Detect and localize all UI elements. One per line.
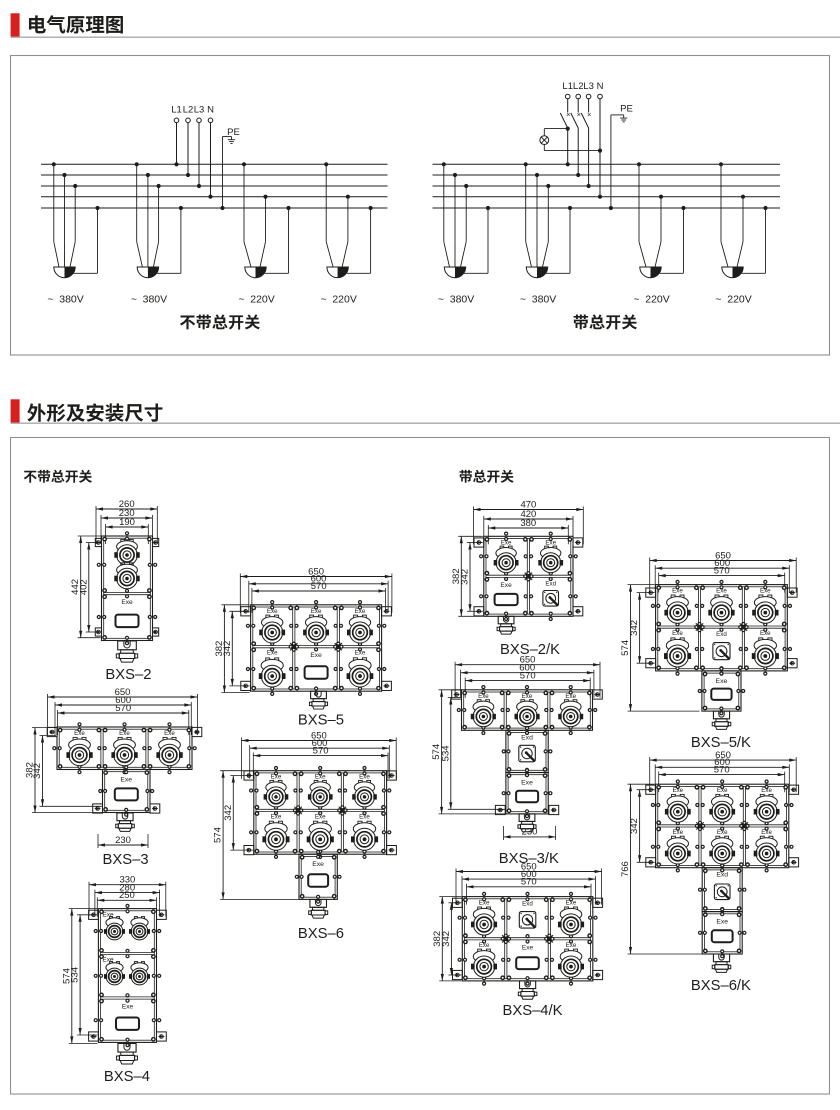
svg-text:342: 342: [441, 931, 452, 947]
svg-text:Exe: Exe: [716, 678, 728, 685]
svg-text:Exd: Exd: [521, 734, 533, 741]
svg-text:570: 570: [714, 764, 730, 775]
svg-text:BXS–6/K: BXS–6/K: [691, 978, 751, 994]
svg-text:570: 570: [311, 581, 327, 592]
svg-text:Exe: Exe: [522, 944, 534, 951]
svg-text:574: 574: [213, 827, 224, 843]
svg-text:~: ~: [238, 294, 244, 306]
svg-text:Exe: Exe: [761, 829, 772, 836]
svg-text:Exe: Exe: [716, 588, 727, 595]
svg-text:×: ×: [566, 110, 570, 119]
svg-text:574: 574: [620, 640, 631, 656]
svg-text:N: N: [207, 105, 214, 116]
svg-text:Exe: Exe: [522, 693, 533, 700]
svg-text:Exe: Exe: [271, 774, 282, 781]
svg-text:342: 342: [629, 620, 640, 636]
svg-text:Exe: Exe: [717, 787, 728, 794]
svg-text:Exe: Exe: [315, 774, 326, 781]
svg-text:402: 402: [78, 579, 89, 595]
svg-text:Exd: Exd: [716, 872, 728, 879]
svg-text:~: ~: [633, 294, 639, 306]
svg-text:Exe: Exe: [359, 813, 370, 820]
svg-text:570: 570: [313, 745, 329, 756]
svg-text:Exd: Exd: [545, 580, 556, 587]
svg-text:Exe: Exe: [566, 900, 577, 907]
svg-text:380: 380: [520, 518, 536, 529]
svg-text:570: 570: [714, 565, 730, 576]
svg-text:Exe: Exe: [501, 539, 512, 546]
svg-text:Exe: Exe: [672, 829, 683, 836]
svg-text:Exe: Exe: [478, 693, 489, 700]
svg-text:BXS–2: BXS–2: [105, 667, 151, 683]
svg-text:Exe: Exe: [500, 582, 512, 589]
svg-text:570: 570: [520, 670, 536, 681]
svg-text:Exe: Exe: [521, 780, 533, 787]
svg-text:Exe: Exe: [271, 813, 282, 820]
svg-text:Exe: Exe: [716, 919, 728, 926]
svg-text:Exe: Exe: [566, 942, 577, 949]
svg-text:Exe: Exe: [122, 1004, 134, 1011]
svg-text:Exe: Exe: [359, 774, 370, 781]
svg-text:Exe: Exe: [310, 652, 322, 659]
svg-text:Exe: Exe: [267, 650, 278, 657]
svg-text:~: ~: [47, 294, 53, 306]
svg-text:570: 570: [115, 703, 131, 714]
svg-text:Exe: Exe: [672, 630, 683, 637]
svg-text:Exe: Exe: [545, 539, 556, 546]
svg-text:L3: L3: [194, 105, 205, 116]
svg-text:220V: 220V: [645, 294, 670, 306]
svg-text:Exe: Exe: [315, 813, 326, 820]
svg-text:BXS–6: BXS–6: [298, 926, 344, 942]
svg-text:220V: 220V: [727, 294, 752, 306]
svg-text:Exe: Exe: [121, 599, 133, 606]
svg-text:Exe: Exe: [120, 777, 132, 784]
svg-text:Exe: Exe: [355, 608, 366, 615]
svg-text:Exe: Exe: [479, 942, 490, 949]
svg-text:Exe: Exe: [479, 900, 490, 907]
svg-text:BXS–5/K: BXS–5/K: [691, 735, 751, 751]
svg-text:×: ×: [577, 110, 581, 119]
svg-text:~: ~: [520, 294, 526, 306]
svg-text:L3: L3: [583, 81, 594, 92]
svg-text:Exe: Exe: [355, 650, 366, 657]
svg-text:380V: 380V: [143, 294, 168, 306]
svg-text:Exe: Exe: [267, 608, 278, 615]
svg-text:250: 250: [119, 890, 135, 901]
svg-text:Exe: Exe: [672, 787, 683, 794]
svg-text:Exe: Exe: [312, 861, 324, 868]
svg-text:220V: 220V: [332, 294, 357, 306]
svg-text:534: 534: [440, 745, 451, 761]
svg-text:Exe: Exe: [672, 588, 683, 595]
svg-text:~: ~: [131, 294, 137, 306]
svg-text:BXS–3: BXS–3: [103, 852, 149, 868]
svg-text:Exe: Exe: [717, 829, 728, 836]
svg-text:BXS–5: BXS–5: [298, 713, 344, 729]
svg-text:534: 534: [70, 967, 81, 983]
svg-text:380V: 380V: [59, 294, 84, 306]
svg-text:×: ×: [587, 110, 591, 119]
svg-text:Exe: Exe: [565, 693, 576, 700]
svg-text:Exe: Exe: [119, 730, 130, 737]
svg-text:230: 230: [522, 827, 538, 838]
svg-text:L1: L1: [171, 105, 182, 116]
svg-text:570: 570: [521, 877, 537, 888]
svg-text:220V: 220V: [250, 294, 275, 306]
svg-text:380V: 380V: [450, 294, 475, 306]
svg-text:Exe: Exe: [164, 730, 175, 737]
svg-text:~: ~: [321, 294, 327, 306]
svg-text:BXS–4/K: BXS–4/K: [502, 1003, 562, 1019]
svg-text:Exd: Exd: [716, 631, 727, 638]
svg-text:342: 342: [460, 569, 471, 585]
svg-text:Exe: Exe: [311, 608, 322, 615]
svg-text:BXS–4: BXS–4: [104, 1069, 150, 1085]
svg-text:380V: 380V: [532, 294, 557, 306]
svg-text:342: 342: [223, 805, 234, 821]
svg-text:L2: L2: [573, 81, 584, 92]
svg-text:342: 342: [629, 818, 640, 834]
svg-text:Exe: Exe: [760, 588, 771, 595]
svg-text:N: N: [597, 81, 604, 92]
svg-text:Exd: Exd: [522, 901, 533, 908]
svg-text:342: 342: [222, 641, 233, 657]
svg-text:190: 190: [119, 517, 135, 528]
svg-text:Exe: Exe: [760, 630, 771, 637]
svg-text:342: 342: [32, 763, 43, 779]
svg-text:Exe: Exe: [761, 787, 772, 794]
svg-text:~: ~: [715, 294, 721, 306]
svg-text:PE: PE: [620, 104, 633, 115]
svg-text:~: ~: [438, 294, 444, 306]
svg-text:Exe: Exe: [74, 730, 85, 737]
svg-text:L2: L2: [183, 105, 194, 116]
svg-text:766: 766: [620, 861, 631, 877]
svg-text:230: 230: [115, 835, 131, 846]
svg-text:L1: L1: [562, 81, 573, 92]
